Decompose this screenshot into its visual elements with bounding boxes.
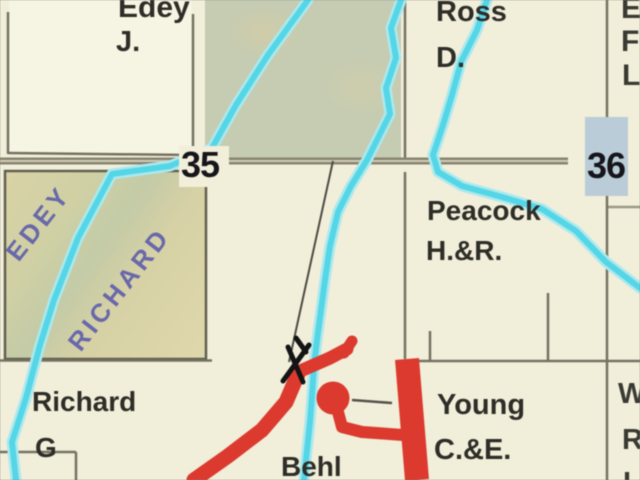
driveway-line bbox=[352, 400, 392, 403]
owner-surname-young: Young bbox=[437, 390, 525, 420]
red-road-stub-tip bbox=[344, 341, 352, 353]
map-canvas: Edey J. Ross D. Peacock H.&R. Richard G … bbox=[0, 0, 640, 480]
owner-surname-peacock: Peacock bbox=[427, 196, 541, 225]
edge-letter-bottom-right-1: W bbox=[618, 379, 640, 409]
red-road-vertical bbox=[407, 359, 417, 480]
owner-initials-peacock: H.&R. bbox=[426, 236, 502, 265]
owner-surname-ross: Ross bbox=[436, 0, 507, 27]
red-road-connector bbox=[338, 412, 403, 435]
farmstead-dot bbox=[317, 382, 350, 415]
owner-surname-behl: Behl bbox=[281, 452, 342, 480]
owner-initials-ross: D. bbox=[436, 43, 465, 73]
owner-surname-richard: Richard bbox=[32, 387, 136, 416]
stream-center-halo bbox=[304, 0, 401, 480]
owner-initials-young: C.&E. bbox=[434, 435, 511, 465]
edge-letter-top-right-1: E bbox=[621, 0, 640, 25]
edge-letter-bottom-right-2: R bbox=[622, 425, 640, 455]
edge-letter-top-right-3: L bbox=[622, 60, 640, 92]
edge-letter-bottom-right-3: L bbox=[623, 468, 640, 480]
edge-letter-top-right-2: F bbox=[621, 26, 639, 58]
owner-initials-edey: J. bbox=[116, 27, 140, 57]
section-number-35: 35 bbox=[181, 146, 219, 184]
owner-surname-edey: Edey bbox=[118, 0, 190, 24]
owner-initials-richard: G bbox=[35, 433, 57, 462]
section-number-36: 36 bbox=[587, 147, 625, 185]
